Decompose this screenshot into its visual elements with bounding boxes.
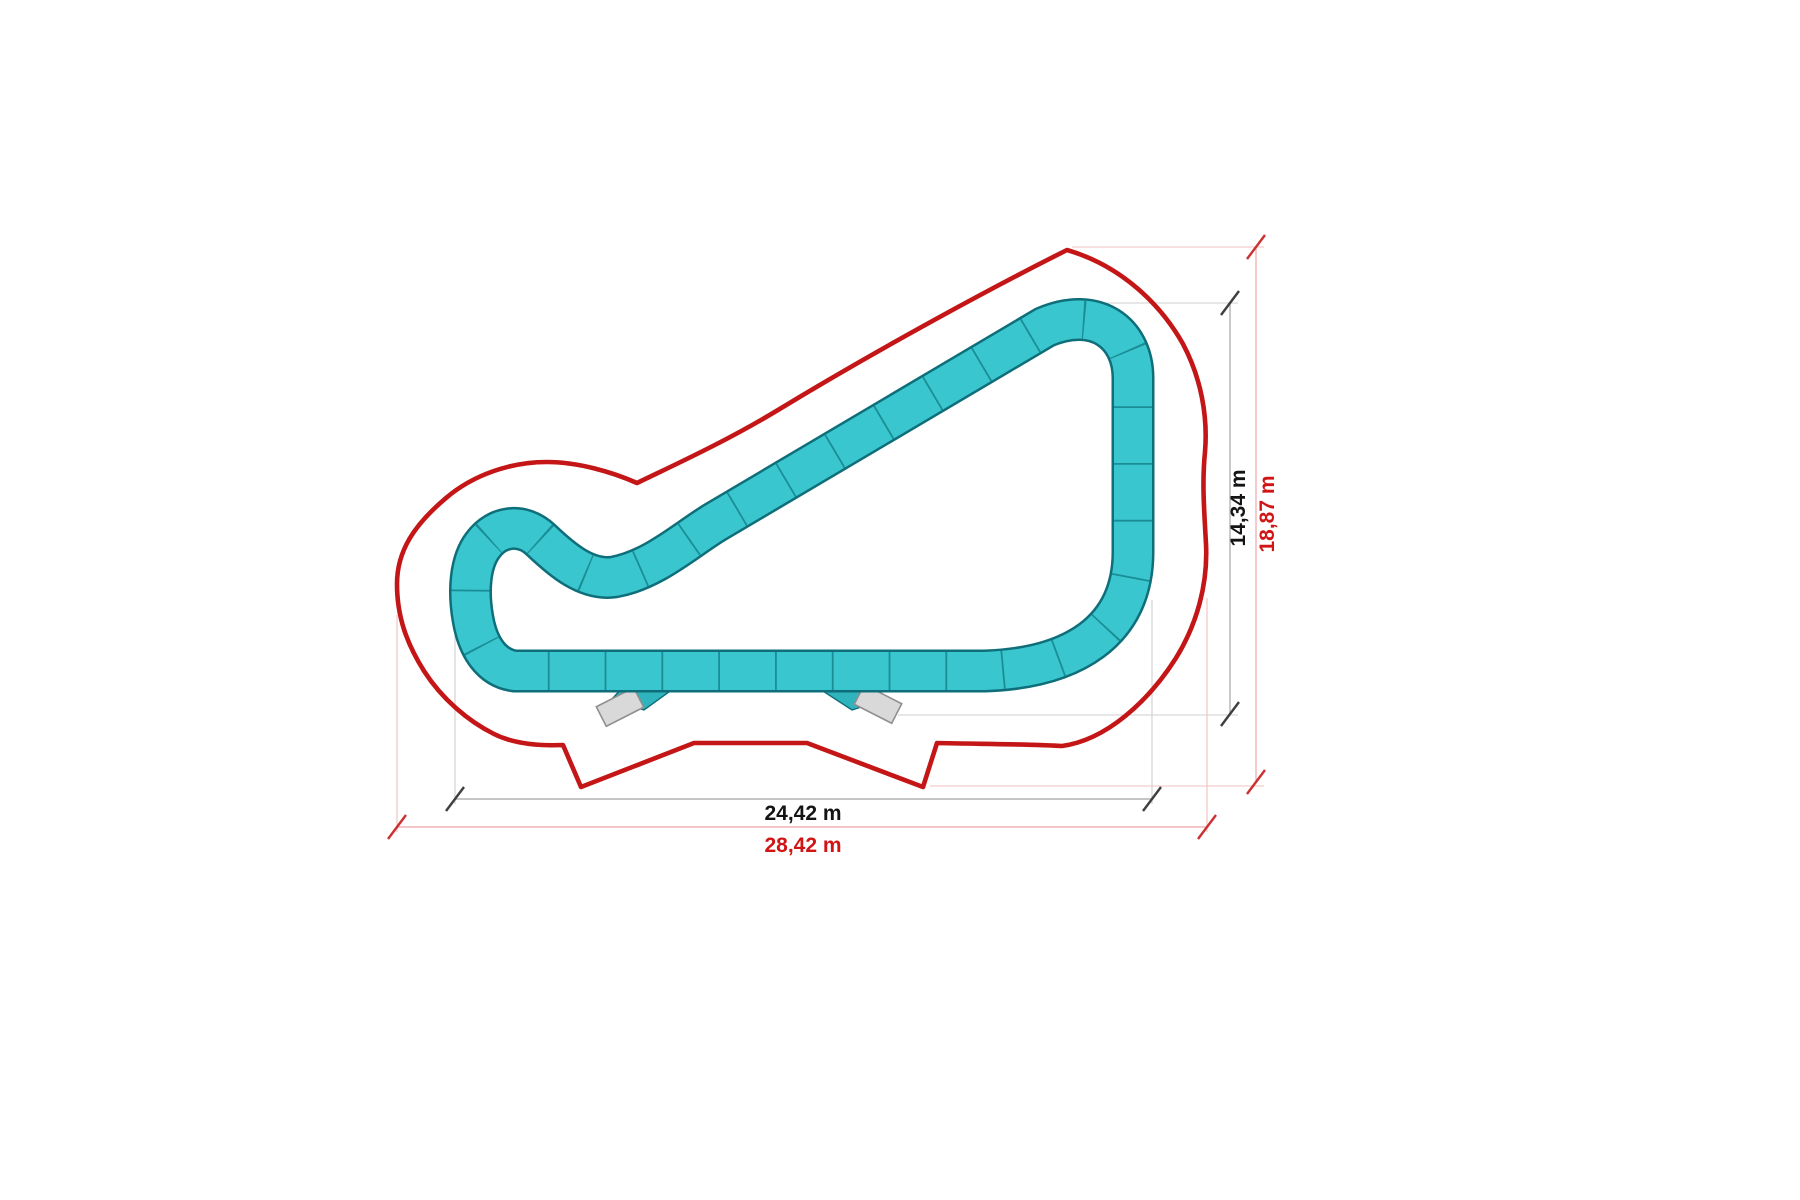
track-edge — [470, 319, 1133, 671]
label-outline-height: 18,87 m — [1256, 475, 1279, 552]
label-outline-width: 28,42 m — [764, 834, 841, 857]
plan-drawing: 24,42 m 28,42 m 14,34 m 18,87 m — [0, 0, 1800, 1200]
water-track — [470, 319, 1133, 671]
label-track-height: 14,34 m — [1227, 469, 1250, 546]
label-track-width: 24,42 m — [764, 802, 841, 825]
pool-track-plan: 24,42 m 28,42 m 14,34 m 18,87 m — [0, 0, 1800, 1200]
